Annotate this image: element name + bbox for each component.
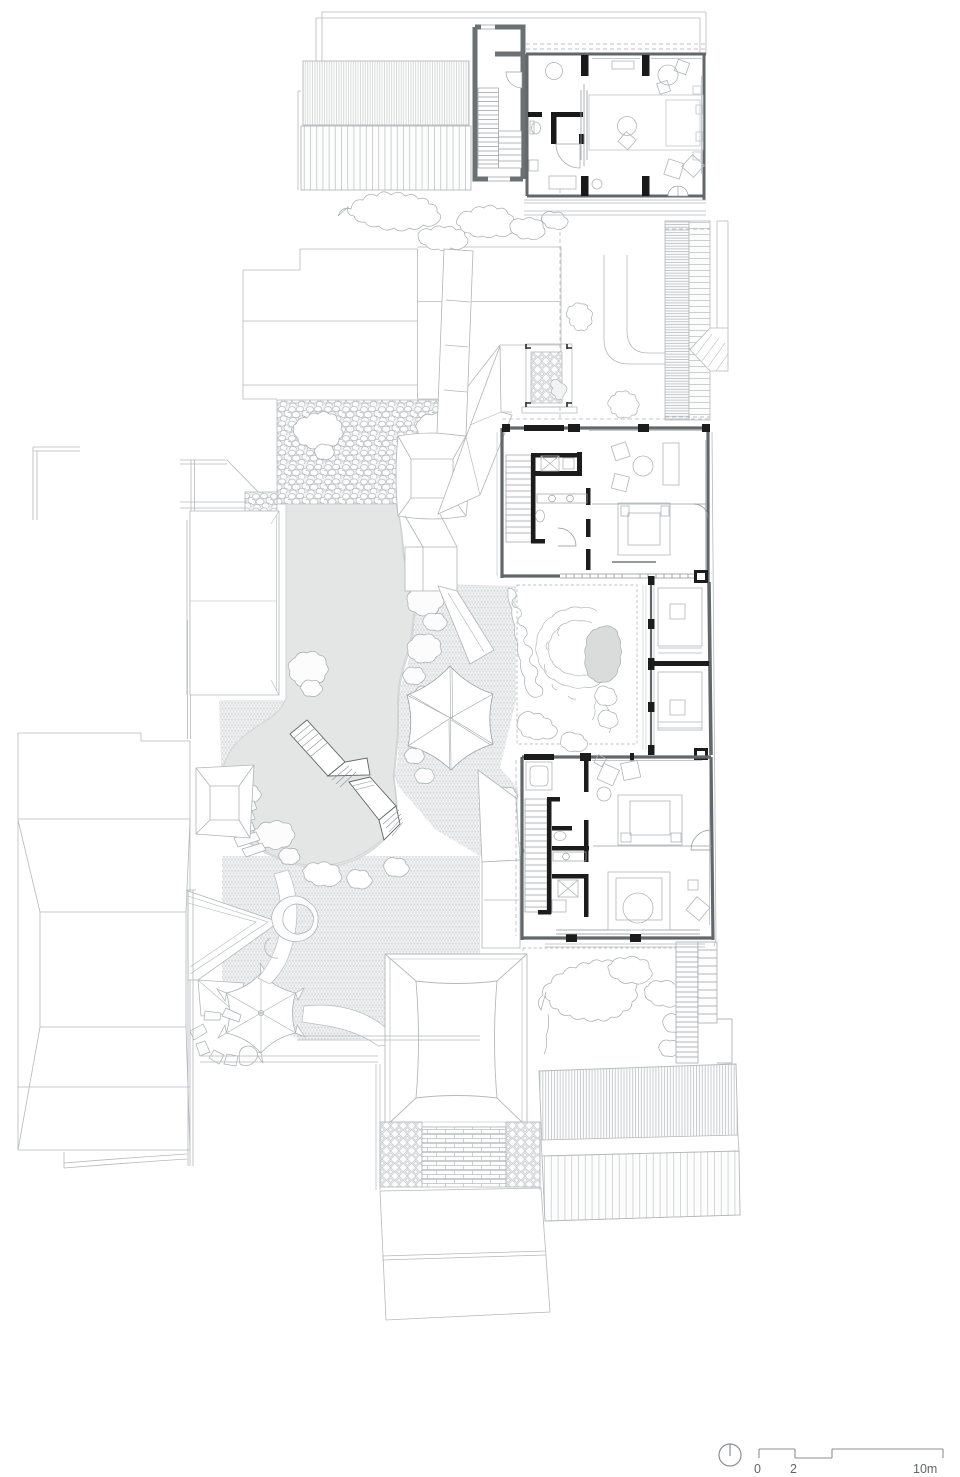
- svg-text:10m: 10m: [913, 1462, 937, 1476]
- svg-text:0: 0: [754, 1462, 761, 1476]
- svg-text:2: 2: [790, 1462, 797, 1476]
